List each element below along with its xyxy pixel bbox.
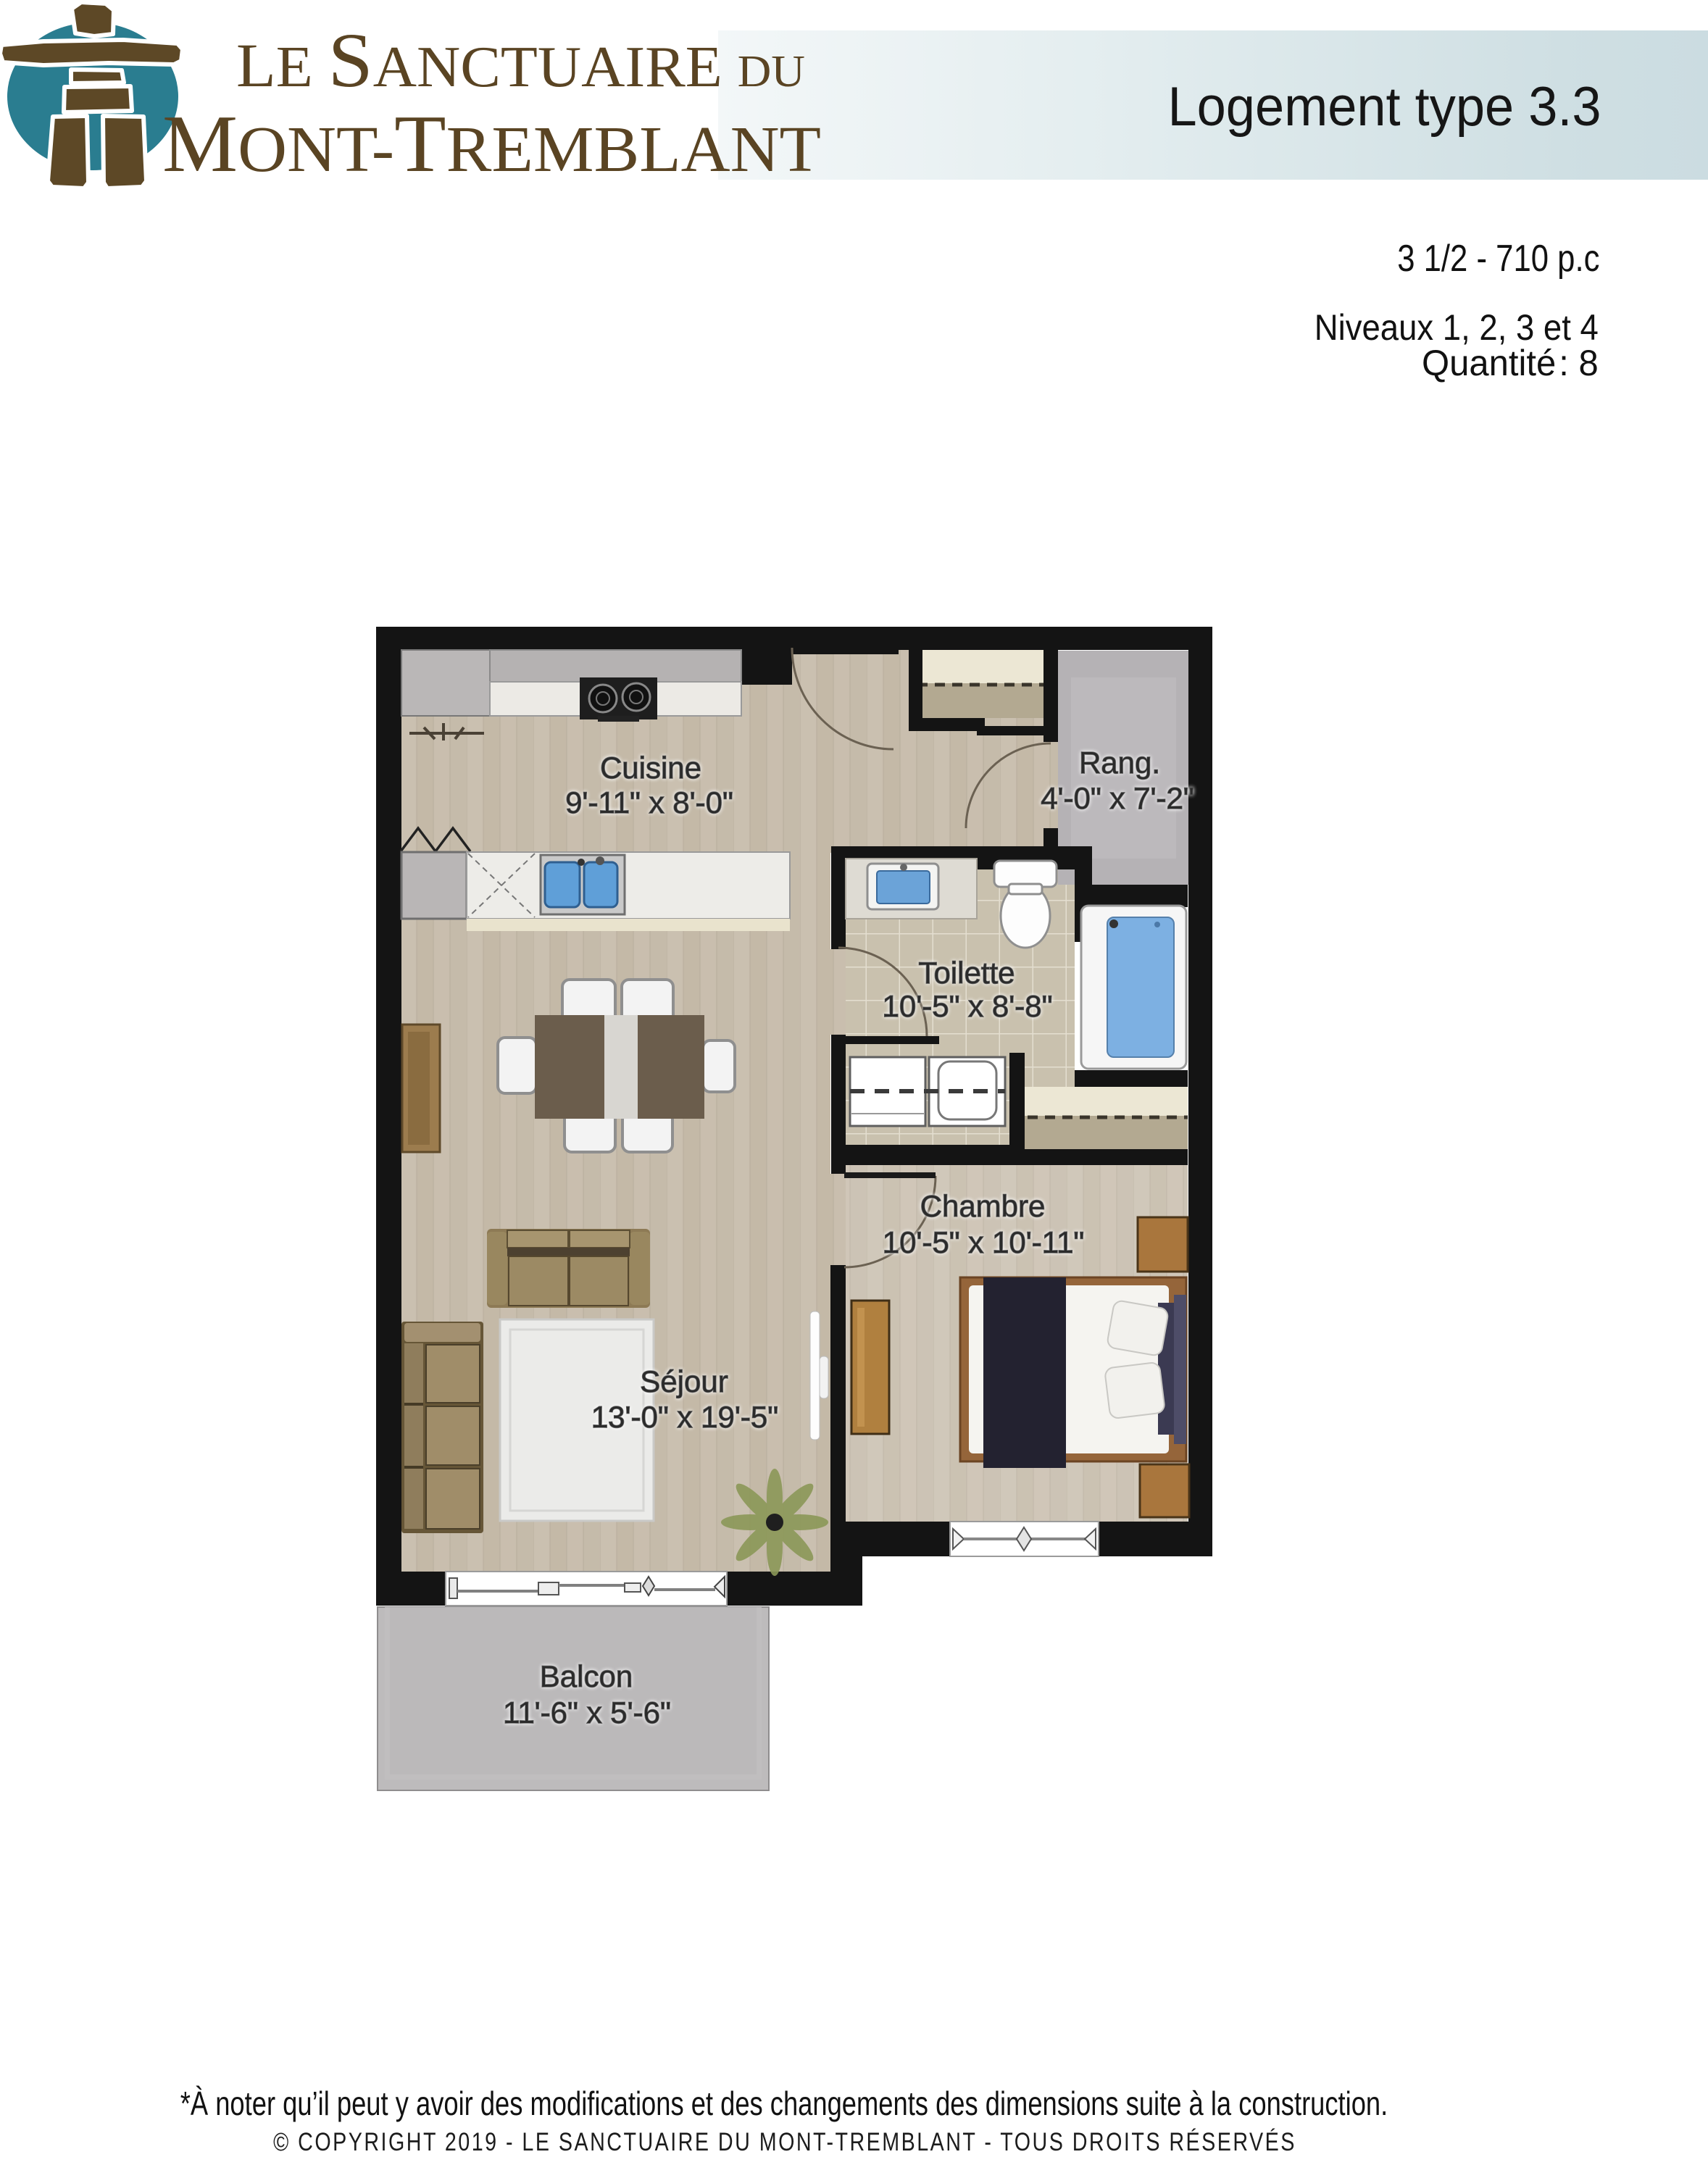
svg-text:10'-5" x 10'-11": 10'-5" x 10'-11" xyxy=(883,1225,1085,1259)
svg-text:11'-6" x 5'-6": 11'-6" x 5'-6" xyxy=(503,1695,671,1730)
svg-text:13'-0" x 19'-5": 13'-0" x 19'-5" xyxy=(591,1400,778,1434)
svg-text:Cuisine: Cuisine xyxy=(600,751,701,785)
svg-text:9'-11" x 8'-0": 9'-11" x 8'-0" xyxy=(565,785,733,819)
svg-text:10'-5" x 8'-8": 10'-5" x 8'-8" xyxy=(883,989,1053,1023)
svg-text:Toilette: Toilette xyxy=(918,956,1015,990)
svg-text:Chambre: Chambre xyxy=(920,1189,1046,1223)
svg-text:Séjour: Séjour xyxy=(640,1364,728,1398)
svg-text:4'-0" x 7'-2": 4'-0" x 7'-2" xyxy=(1041,781,1194,815)
svg-text:Balcon: Balcon xyxy=(540,1659,633,1693)
svg-text:Rang.: Rang. xyxy=(1079,746,1160,780)
